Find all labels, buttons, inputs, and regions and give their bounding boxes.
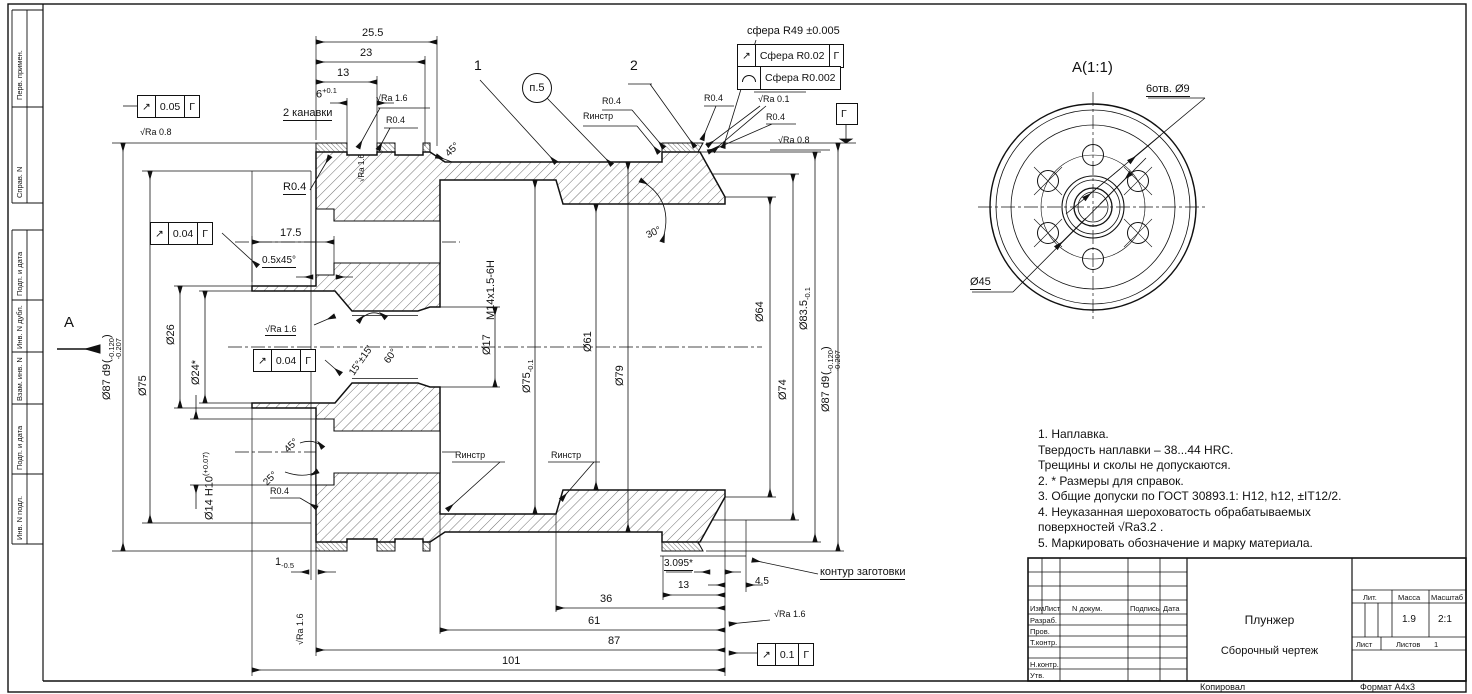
roughness-ra08-left: √Ra 0.8 bbox=[140, 128, 171, 137]
dim-dia75-bore: Ø75-0.1 bbox=[522, 359, 535, 393]
tb-podp: Подпись bbox=[1130, 604, 1160, 613]
radius-rinstr-b2: Rинстр bbox=[551, 451, 581, 460]
view-a-bolt-circle-label: Ø45 bbox=[970, 277, 991, 290]
dim-36: 36 bbox=[600, 594, 612, 605]
roughness-ra16-br: √Ra 1.6 bbox=[774, 610, 805, 619]
sidebar-item: Подп. и дата bbox=[15, 252, 24, 296]
dim-dia835: Ø83.5-0.1 bbox=[799, 287, 812, 330]
part-name: Плунжер bbox=[1187, 614, 1352, 626]
note-line: 2. * Размеры для справок. bbox=[1038, 474, 1468, 490]
tb-data: Дата bbox=[1163, 604, 1180, 613]
dim-m14-thread: M14x1.5-6H bbox=[486, 260, 497, 320]
datum-box: Г bbox=[836, 103, 858, 125]
note-line: Трещины и сколы не допускаются. bbox=[1038, 458, 1468, 474]
radius-r04-c: R0.4 bbox=[766, 113, 785, 122]
note-line: 3. Общие допуски по ГОСТ 30893.1: H12, h… bbox=[1038, 489, 1468, 505]
dim-61: 61 bbox=[588, 616, 600, 627]
tolerance-frame-sphere2: Сфера R0.002 bbox=[737, 66, 841, 90]
sphere-leader-label: сфера R49 ±0.005 bbox=[747, 26, 840, 37]
dim-6: 6+0.1 bbox=[316, 87, 337, 101]
roughness-ra01: √Ra 0.1 bbox=[758, 95, 789, 104]
runout-icon: ↗ bbox=[138, 96, 155, 117]
tb-list2: Лист bbox=[1356, 640, 1372, 649]
view-a-holes-label: 6отв. Ø9 bbox=[1146, 84, 1190, 97]
dim-chamfer-05: 0.5x45° bbox=[262, 256, 296, 268]
dim-17-5: 17.5 bbox=[280, 228, 301, 239]
note-line: поверхностей √Ra3.2 . bbox=[1038, 520, 1468, 536]
runout-icon: ↗ bbox=[738, 45, 755, 67]
radius-r04-flange: R0.4 bbox=[283, 182, 306, 195]
tolerance-frame-01: ↗0.1Г bbox=[757, 643, 814, 666]
roughness-ra16-mid: √Ra 1.6 bbox=[265, 325, 296, 336]
tb-lit: Лит. bbox=[1363, 593, 1377, 602]
tb-tkontr: Т.контр. bbox=[1030, 638, 1057, 647]
tb-listov: Листов bbox=[1396, 640, 1420, 649]
dim-3095: 3.095* bbox=[664, 559, 693, 571]
tolerance-frame-005: ↗0.05Г bbox=[137, 95, 200, 118]
radius-rinstr-b1: Rинстр bbox=[455, 451, 485, 460]
sidebar-item: Инв. N дубл. bbox=[15, 305, 24, 349]
drawing-linework bbox=[0, 0, 1472, 694]
dim-25-5: 25.5 bbox=[362, 28, 383, 39]
sidebar-item: Перв. примен. bbox=[15, 50, 24, 100]
roughness-ra16-face: √Ra 1.6 bbox=[296, 614, 305, 645]
tb-izm: Изм bbox=[1030, 604, 1044, 613]
tb-prov: Пров. bbox=[1030, 627, 1050, 636]
dim-dia87-right: Ø87 d9 (-0.120-0.207) bbox=[821, 346, 841, 412]
dim-dia26: Ø26 bbox=[166, 324, 177, 345]
note-line: 1. Наплавка. bbox=[1038, 427, 1468, 443]
note-line: Твердость наплавки – 38...44 HRC. bbox=[1038, 443, 1468, 459]
radius-r04: R0.4 bbox=[386, 116, 405, 125]
dim-4-5: 4.5 bbox=[755, 577, 769, 587]
runout-icon: ↗ bbox=[758, 644, 775, 665]
dim-dia75: Ø75 bbox=[138, 375, 149, 396]
footer-kopiroval: Копировал bbox=[1200, 683, 1245, 692]
tb-scale-val: 2:1 bbox=[1438, 615, 1452, 625]
view-a-arrow-label: А bbox=[64, 315, 74, 330]
dim-dia87-left: Ø87 d9 (-0.120-0.207) bbox=[102, 334, 122, 400]
label-blank-contour: контур заготовки bbox=[820, 567, 905, 580]
footer-format: Формат А4х3 bbox=[1360, 683, 1415, 692]
dim-dia14: Ø14 H10(+0.07) bbox=[202, 452, 216, 520]
roughness-ra16: √Ra 1.6 bbox=[376, 94, 407, 103]
runout-icon: ↗ bbox=[254, 350, 271, 371]
radius-r04-b: R0.4 bbox=[704, 94, 723, 103]
sidebar-item: Инв. N подл. bbox=[15, 496, 24, 540]
tb-nkontr: Н.контр. bbox=[1030, 660, 1059, 669]
drawing-sheet: { "sheet": {"kopiroval": "Копировал", "f… bbox=[0, 0, 1472, 694]
tb-utv: Утв. bbox=[1030, 671, 1044, 680]
tolerance-frame-sphere1: ↗Сфера R0.02Г bbox=[737, 44, 844, 68]
callout-1: 1 bbox=[474, 58, 482, 72]
radius-r04-hub: R0.4 bbox=[270, 487, 289, 496]
dim-1: 1-0.5 bbox=[275, 557, 294, 570]
roughness-ra08-right: √Ra 0.8 bbox=[778, 136, 809, 145]
tolerance-frame-004b: ↗0.04Г bbox=[253, 349, 316, 372]
callout-note5: п.5 bbox=[522, 73, 552, 103]
callout-2: 2 bbox=[630, 58, 638, 72]
roughness-ra16-groove: √Ra 1.6 bbox=[358, 154, 366, 182]
tb-listov-val: 1 bbox=[1434, 640, 1438, 649]
dim-dia61: Ø61 bbox=[583, 331, 594, 352]
dim-87: 87 bbox=[608, 636, 620, 647]
dim-dia64: Ø64 bbox=[755, 301, 766, 322]
label-grooves: 2 канавки bbox=[283, 108, 332, 121]
radius-rinstr-top: Rинстр bbox=[583, 112, 613, 121]
tb-massa-val: 1.9 bbox=[1402, 615, 1416, 625]
tb-list: Лист bbox=[1044, 604, 1060, 613]
sidebar-item: Подп. и дата bbox=[15, 426, 24, 470]
radius-r04-a: R0.4 bbox=[602, 97, 621, 106]
tolerance-frame-004a: ↗0.04Г bbox=[150, 222, 213, 245]
doc-type: Сборочный чертеж bbox=[1187, 646, 1352, 657]
dim-dia24: Ø24* bbox=[191, 360, 202, 385]
sidebar-item: Взам. инв. N bbox=[15, 357, 24, 401]
dim-23: 23 bbox=[360, 48, 372, 59]
sidebar-item: Справ. N bbox=[15, 167, 24, 198]
note-line: 5. Маркировать обозначение и марку матер… bbox=[1038, 536, 1468, 552]
dim-dia17: Ø17 bbox=[482, 334, 493, 355]
tb-massa: Масса bbox=[1398, 593, 1420, 602]
tb-razrab: Разраб. bbox=[1030, 616, 1057, 625]
dim-dia79: Ø79 bbox=[615, 365, 626, 386]
dim-13b: 13 bbox=[678, 581, 689, 591]
dim-13: 13 bbox=[337, 68, 349, 79]
view-a-title: А(1:1) bbox=[1072, 60, 1113, 75]
note-line: 4. Неуказанная шероховатость обрабатывае… bbox=[1038, 505, 1468, 521]
tb-ndok: N докум. bbox=[1072, 604, 1102, 613]
profile-icon bbox=[738, 67, 760, 89]
technical-notes: 1. Наплавка. Твердость наплавки – 38...4… bbox=[1038, 427, 1468, 551]
dim-dia74: Ø74 bbox=[778, 379, 789, 400]
dim-101: 101 bbox=[502, 656, 520, 667]
tb-masshtab: Масштаб bbox=[1431, 593, 1463, 602]
runout-icon: ↗ bbox=[151, 223, 168, 244]
